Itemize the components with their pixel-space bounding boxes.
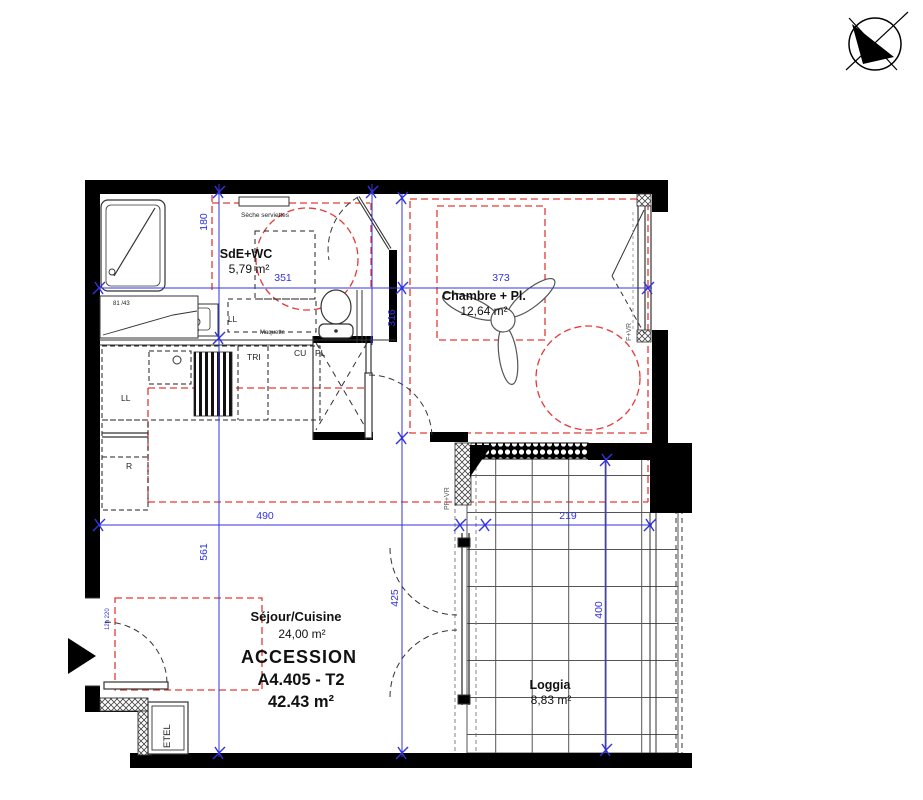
wall-closet-bottom bbox=[313, 432, 373, 440]
north-compass-icon bbox=[846, 12, 908, 70]
kitchen-sink bbox=[149, 351, 191, 384]
loggia-tile-floor bbox=[467, 458, 678, 753]
wall-bathroom-right bbox=[389, 250, 397, 342]
door-swing-arc bbox=[105, 622, 167, 684]
bedroom-door bbox=[365, 373, 432, 438]
door-swing-arc bbox=[390, 630, 457, 697]
etel-closet bbox=[100, 698, 188, 755]
label-closet: PL bbox=[315, 348, 326, 358]
label-sorting: TRI bbox=[247, 352, 261, 362]
insulation-block bbox=[637, 194, 651, 206]
floor-plan-drawing: 351 373 490 219 180 316 561 425 400 SdE+… bbox=[0, 0, 923, 800]
clearance-bedroom bbox=[410, 199, 648, 433]
label-french-door: PF+VR bbox=[444, 487, 451, 510]
turning-circle-bedroom bbox=[536, 326, 640, 430]
label-washer: LL bbox=[121, 393, 131, 403]
room-bathroom-area: 5,79 m² bbox=[229, 262, 270, 276]
interior-partitions bbox=[85, 290, 396, 686]
unit-program: ACCESSION bbox=[241, 647, 357, 667]
label-towel-dryer: Sèche serviettes bbox=[241, 212, 290, 219]
door-swing-arc bbox=[369, 375, 432, 438]
dim-loggia-depth: 400 bbox=[593, 601, 605, 619]
wall-bedroom-bottom bbox=[430, 432, 468, 442]
dim-door-span: 425 bbox=[389, 589, 401, 607]
bedroom-window bbox=[612, 194, 651, 342]
towel-dryer bbox=[239, 197, 289, 206]
insulation-block bbox=[455, 443, 471, 505]
insulation-block bbox=[637, 330, 651, 342]
dim-bed-width: 373 bbox=[492, 272, 510, 284]
room-living-name: Séjour/Cuisine bbox=[250, 609, 341, 624]
entry-door-leaf bbox=[104, 682, 168, 689]
label-left-window: 81 /43 bbox=[113, 301, 130, 307]
kitchen-details bbox=[102, 356, 181, 437]
unit-area: 42.43 m² bbox=[268, 693, 335, 711]
room-living-area: 24,00 m² bbox=[278, 627, 325, 641]
room-bathroom-name: SdE+WC bbox=[220, 247, 272, 261]
dim-bath-width: 351 bbox=[274, 272, 292, 284]
wall-loggia-bottom bbox=[455, 753, 692, 768]
wall-loggia-corner bbox=[650, 443, 692, 513]
fan-blade bbox=[495, 326, 521, 386]
wall-right-top bbox=[652, 180, 668, 212]
label-entry-door-tag: 12h 220 bbox=[105, 608, 111, 630]
bathroom-door bbox=[328, 197, 390, 260]
wall-bottom bbox=[130, 753, 462, 768]
room-bedroom-area: 12,64 m² bbox=[460, 304, 507, 318]
appliance-hatched bbox=[194, 352, 232, 416]
label-bedroom-window: F+VR bbox=[626, 323, 633, 341]
dim-living-width: 490 bbox=[256, 510, 274, 522]
dim-bath-depth: 180 bbox=[198, 213, 210, 231]
wall-left bbox=[85, 180, 100, 598]
dim-bed-depth: 316 bbox=[386, 309, 398, 327]
room-loggia-area: 8,83 m² bbox=[531, 693, 572, 707]
label-maquette: Maquette bbox=[260, 330, 286, 336]
room-bedroom-name: Chambre + Pl. bbox=[442, 289, 526, 303]
floor-plan-page: 351 373 490 219 180 316 561 425 400 SdE+… bbox=[0, 0, 923, 800]
washer-slot-bathroom bbox=[228, 299, 316, 332]
shower-drain bbox=[109, 269, 115, 275]
door-hinge bbox=[458, 538, 470, 547]
door-swing-arc bbox=[328, 197, 358, 260]
label-fridge: R bbox=[126, 461, 132, 471]
label-washer-bath: LL bbox=[228, 315, 237, 324]
wall-loggia-top bbox=[588, 443, 652, 460]
toilet-button bbox=[334, 329, 338, 333]
toilet-bowl bbox=[321, 290, 351, 324]
entrance bbox=[68, 622, 168, 689]
insulation-block bbox=[100, 698, 148, 711]
entrance-arrow-icon bbox=[68, 638, 96, 674]
unit-ref: A4.405 - T2 bbox=[257, 671, 344, 689]
room-loggia-name: Loggia bbox=[530, 678, 572, 692]
label-kitchen-unit: CU bbox=[294, 348, 306, 358]
label-etel: ETEL bbox=[162, 724, 173, 748]
dim-living-depth: 561 bbox=[198, 543, 210, 561]
faucet-icon bbox=[173, 356, 181, 364]
door-hinge bbox=[458, 695, 470, 704]
dim-loggia-width: 219 bbox=[559, 510, 577, 522]
clearance-entry bbox=[115, 598, 262, 690]
wall-right-mid bbox=[652, 330, 668, 462]
